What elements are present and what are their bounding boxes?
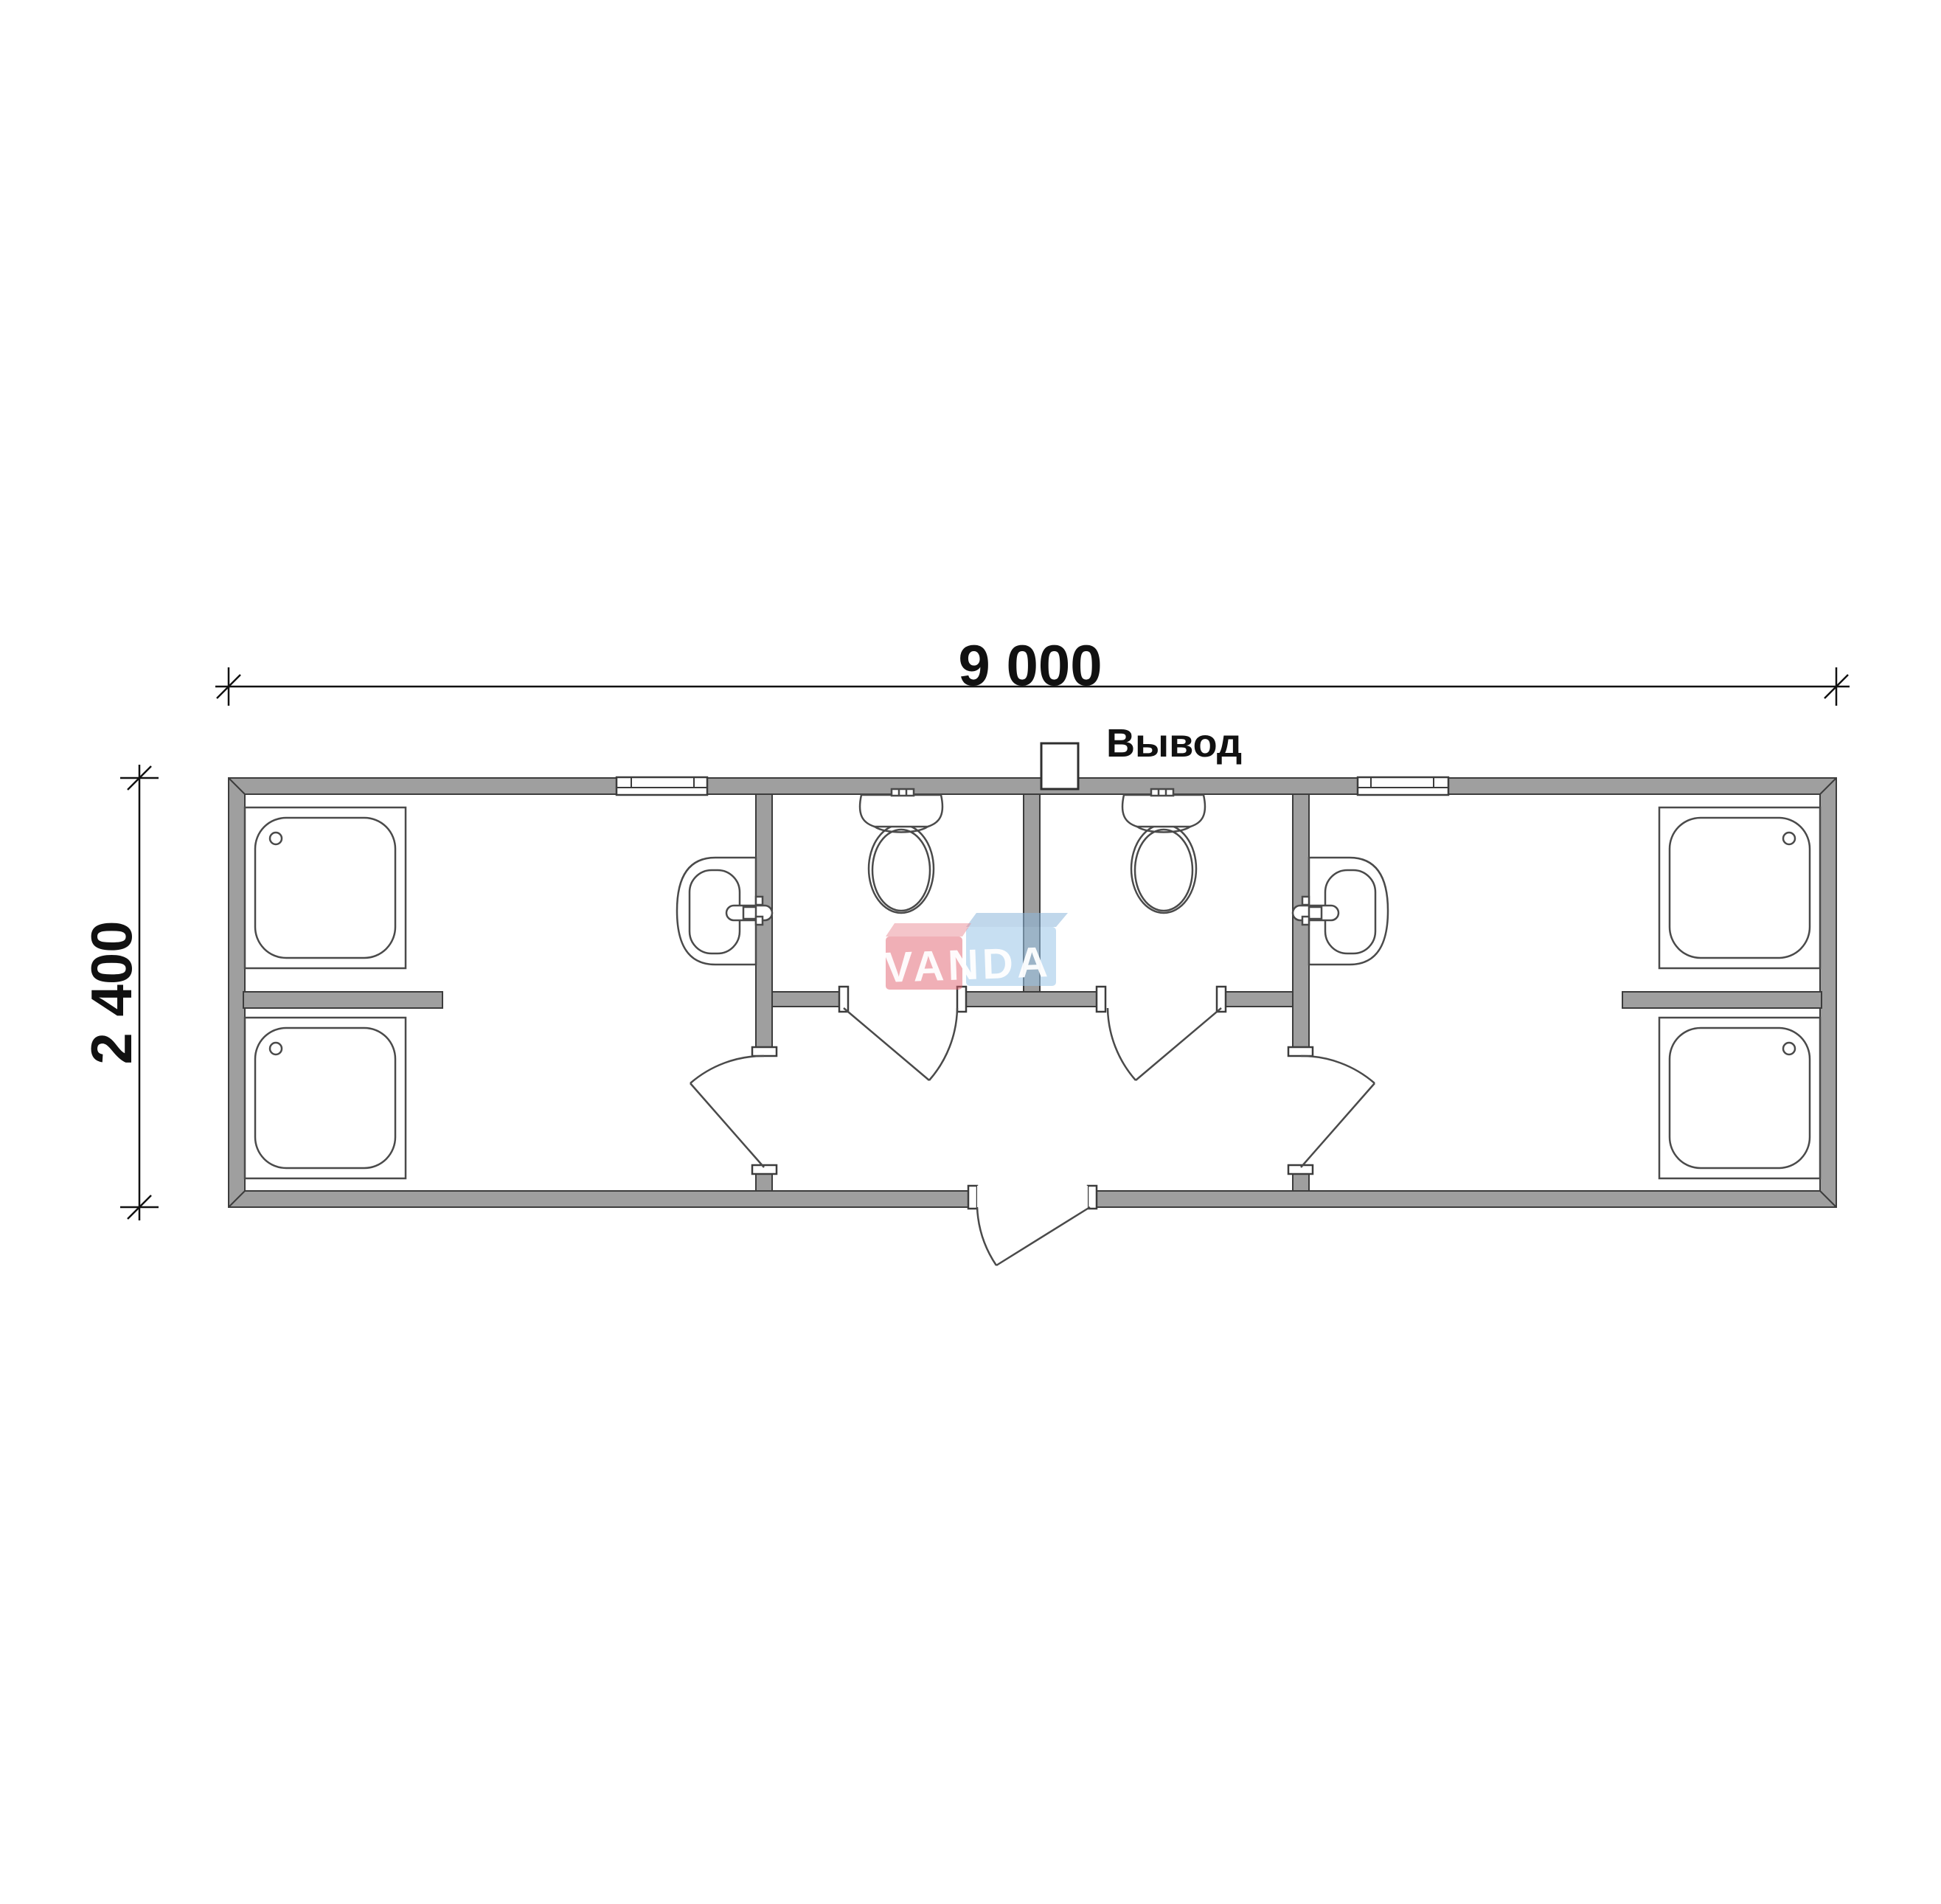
shower-tray-top-left xyxy=(245,807,406,968)
left-door-stub xyxy=(756,1174,772,1191)
floor-plan-page: 9 000 2 400 xyxy=(0,0,1941,1904)
drain-icon xyxy=(1783,833,1795,844)
jamb xyxy=(1288,1047,1313,1056)
jamb xyxy=(968,1186,977,1209)
jamb xyxy=(839,987,848,1012)
right-door-stub xyxy=(1293,1174,1309,1191)
right-shower-partition xyxy=(1622,992,1822,1008)
vanda-watermark-logo: VANDA xyxy=(883,913,1068,992)
shower-tray-bottom-left xyxy=(245,1018,406,1178)
left-dimension: 2 400 xyxy=(79,765,159,1220)
jamb xyxy=(1097,987,1105,1012)
logo-top-face-blue xyxy=(966,913,1068,927)
shower-tray-icon xyxy=(245,807,406,968)
entrance-opening xyxy=(977,1186,1088,1209)
shower-tray-icon xyxy=(245,1018,406,1178)
door-leaf xyxy=(996,1207,1090,1265)
width-dimension-label: 9 000 xyxy=(958,633,1102,698)
right-wc-front-wall xyxy=(1226,992,1293,1007)
outlet-label: Вывод xyxy=(1106,721,1242,765)
jamb xyxy=(752,1047,777,1056)
top-dimension: 9 000 xyxy=(215,633,1850,706)
toilet-bowl-icon xyxy=(869,824,934,913)
door-entrance xyxy=(977,1186,1090,1265)
logo-top-face-red xyxy=(886,923,971,937)
shower-tray-top-right xyxy=(1659,807,1820,968)
logo-text: VANDA xyxy=(883,938,1052,992)
jamb xyxy=(1088,1186,1097,1209)
jamb xyxy=(1217,987,1226,1012)
cistern-connection xyxy=(1151,789,1173,796)
depth-dimension-label: 2 400 xyxy=(79,920,144,1064)
window-left xyxy=(617,777,707,795)
left-shower-partition xyxy=(243,992,442,1008)
left-wc-front-wall xyxy=(772,992,839,1007)
cistern-connection xyxy=(892,789,914,796)
jamb xyxy=(957,987,966,1012)
floor-plan-drawing: 9 000 2 400 xyxy=(0,0,1941,1904)
drain-icon xyxy=(270,833,282,844)
outlet-box-icon xyxy=(1041,743,1078,789)
drain-icon xyxy=(1783,1043,1795,1055)
toilet-tank-icon xyxy=(1122,795,1205,827)
toilet-tank-icon xyxy=(860,795,942,827)
door-swing-arc xyxy=(977,1207,996,1265)
toilet-bowl-icon xyxy=(1131,824,1196,913)
window-right xyxy=(1358,777,1448,795)
drain-icon xyxy=(270,1043,282,1055)
central-lobby-wall xyxy=(966,992,1097,1007)
shower-tray-bottom-right xyxy=(1659,1018,1820,1178)
shower-tray-icon xyxy=(1659,807,1820,968)
shower-tray-icon xyxy=(1659,1018,1820,1178)
